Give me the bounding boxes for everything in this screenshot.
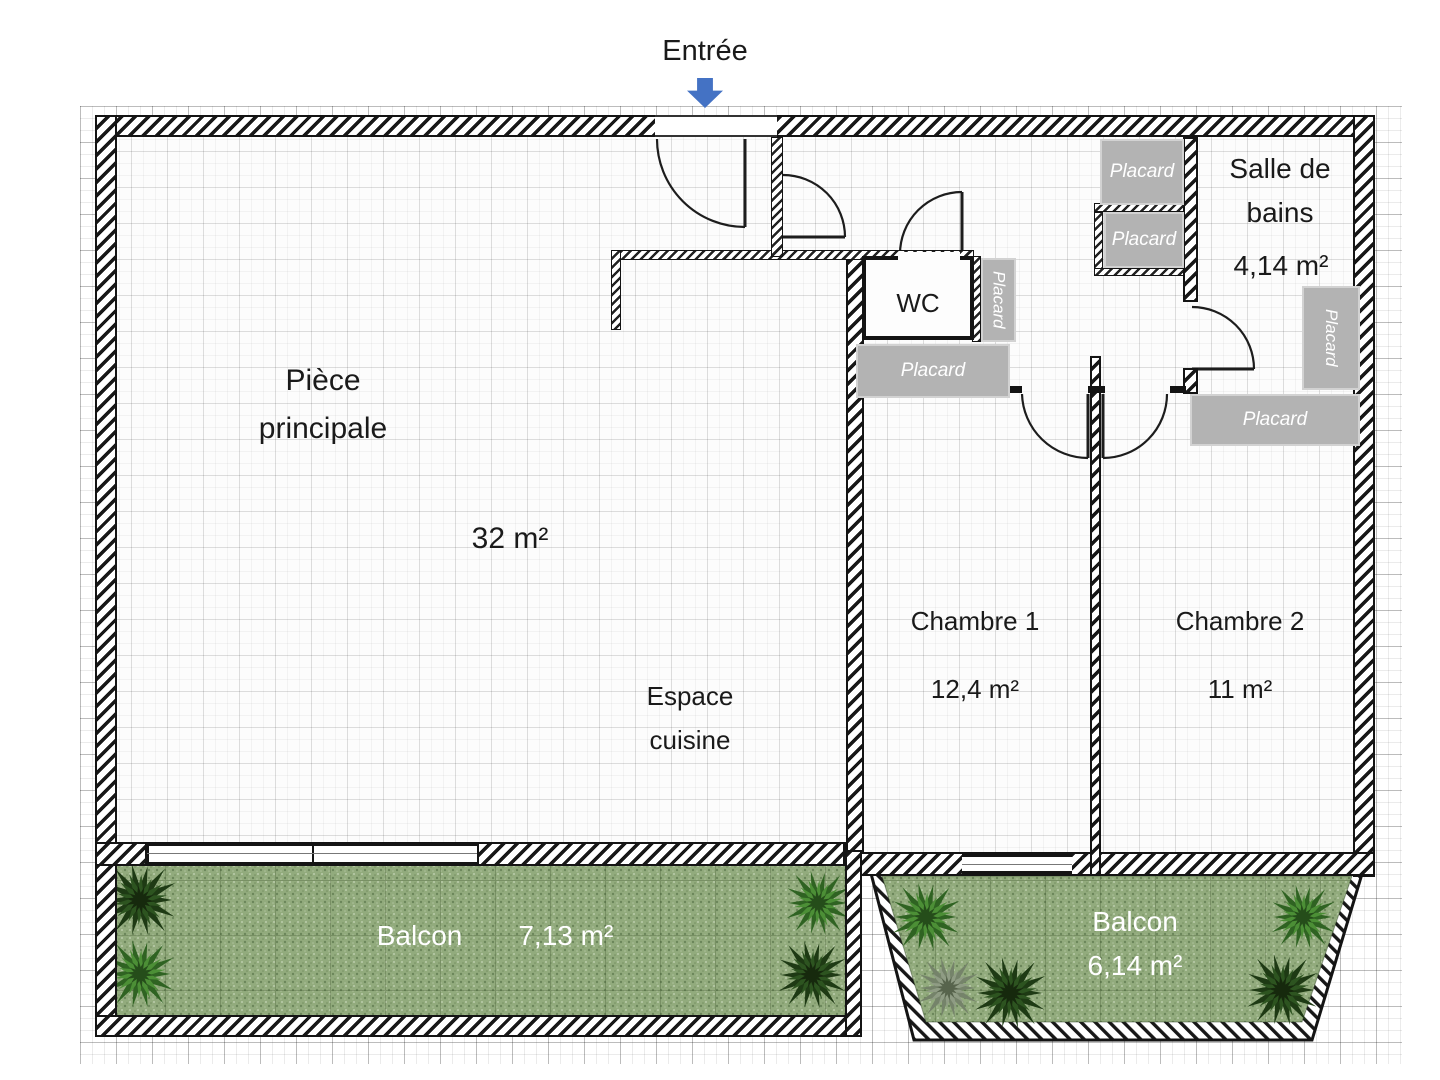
wc-door-opening (898, 252, 960, 262)
wc-label: WC (862, 284, 974, 322)
bedroom2-area: 11 m² (1175, 670, 1305, 708)
closet-bathroom-horizontal: Placard (1190, 394, 1360, 446)
entrance-label: Entrée (620, 30, 790, 72)
bathroom-name: Salle de bains (1208, 147, 1352, 235)
wall-bottom-bedrooms (845, 852, 1375, 876)
main-room-name: Pièce principale (218, 357, 428, 453)
wall-bathroom-upper (1183, 137, 1198, 302)
main-balcony-window (147, 842, 477, 866)
wall-closet-bottom (1094, 268, 1184, 276)
balcony1-area-text: 7,13 m² (518, 920, 613, 952)
wall-closet-divider-v (1094, 212, 1103, 274)
closet-label: Placard (1243, 409, 1307, 431)
wall-bottom-left-corner (95, 842, 147, 866)
closet-label: Placard (901, 360, 965, 382)
balcony2-area-text: 6,14 m² (1088, 944, 1183, 988)
balcony2-label: Balcon 6,14 m² (1040, 898, 1230, 990)
bedroom1-area: 12,4 m² (905, 670, 1045, 708)
closet-bathroom-vertical: Placard (1302, 286, 1360, 390)
bedroom2-area-text: 11 m² (1208, 674, 1273, 705)
wc-name: WC (896, 288, 939, 319)
bedroom1-area-text: 12,4 m² (931, 674, 1019, 705)
closet-wc-horizontal: Placard (856, 344, 1010, 398)
corridor-wall-seg3 (1170, 386, 1186, 393)
closet-label: Placard (1321, 309, 1341, 367)
balcony1-wall-right (845, 842, 862, 1037)
wall-main-divider (846, 250, 864, 852)
entrance-arrow-icon (687, 78, 723, 108)
balcony1-wall-bottom (95, 1015, 862, 1037)
wall-kitchen-vertical (611, 250, 621, 330)
closet-top-1: Placard (1100, 139, 1184, 205)
floor-plan: Placard Placard Placard Placard Placard … (0, 0, 1440, 1080)
closet-label: Placard (989, 271, 1009, 329)
kitchen-label: Espace cuisine (628, 672, 752, 764)
balcony1-label: Balcon 7,13 m² (330, 914, 660, 958)
corridor-wall-seg1 (1010, 386, 1022, 393)
bathroom-area-text: 4,14 m² (1234, 250, 1329, 282)
wall-bottom-main (477, 842, 845, 866)
bedroom1-label: Chambre 1 (890, 602, 1060, 640)
corridor-wall-seg2 (1088, 386, 1105, 393)
bathroom-area: 4,14 m² (1216, 246, 1346, 286)
wall-left (95, 115, 117, 1037)
closet-top-2: Placard (1104, 212, 1184, 268)
balcony2-name: Balcon (1092, 900, 1178, 944)
wall-hall-stub (771, 137, 783, 257)
main-room-area: 32 m² (430, 518, 590, 560)
entry-door-opening (655, 115, 777, 137)
entrance-text: Entrée (662, 35, 747, 68)
closet-wc-vertical: Placard (981, 258, 1016, 342)
wall-right (1353, 115, 1375, 877)
bedroom1-name: Chambre 1 (911, 606, 1040, 637)
bedroom2-name: Chambre 2 (1176, 606, 1305, 637)
main-room-area-text: 32 m² (472, 522, 549, 556)
closet-label: Placard (1110, 161, 1174, 183)
bedroom2-label: Chambre 2 (1150, 602, 1330, 640)
balcony1-name: Balcon (377, 920, 463, 952)
bedroom1-window (962, 854, 1072, 874)
bathroom-label: Salle de bains (1208, 144, 1352, 238)
closet-label: Placard (1112, 229, 1176, 251)
main-room-label: Pièce principale (218, 355, 428, 455)
wall-bedroom-divider (1090, 356, 1101, 876)
kitchen-name: Espace cuisine (628, 674, 752, 762)
